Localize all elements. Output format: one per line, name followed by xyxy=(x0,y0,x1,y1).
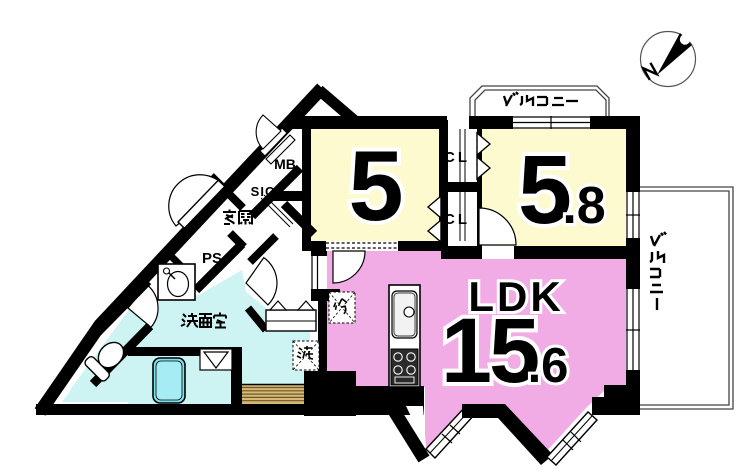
svg-text:5: 5 xyxy=(348,130,403,241)
svg-text:PS: PS xyxy=(202,250,222,267)
svg-text:CL: CL xyxy=(444,149,470,166)
svg-text:CL: CL xyxy=(444,211,470,228)
svg-text:.6: .6 xyxy=(528,339,569,393)
svg-text:.8: .8 xyxy=(562,177,605,235)
svg-text:SIC: SIC xyxy=(251,184,276,199)
svg-text:15: 15 xyxy=(441,300,538,402)
svg-text:MB: MB xyxy=(274,156,296,172)
